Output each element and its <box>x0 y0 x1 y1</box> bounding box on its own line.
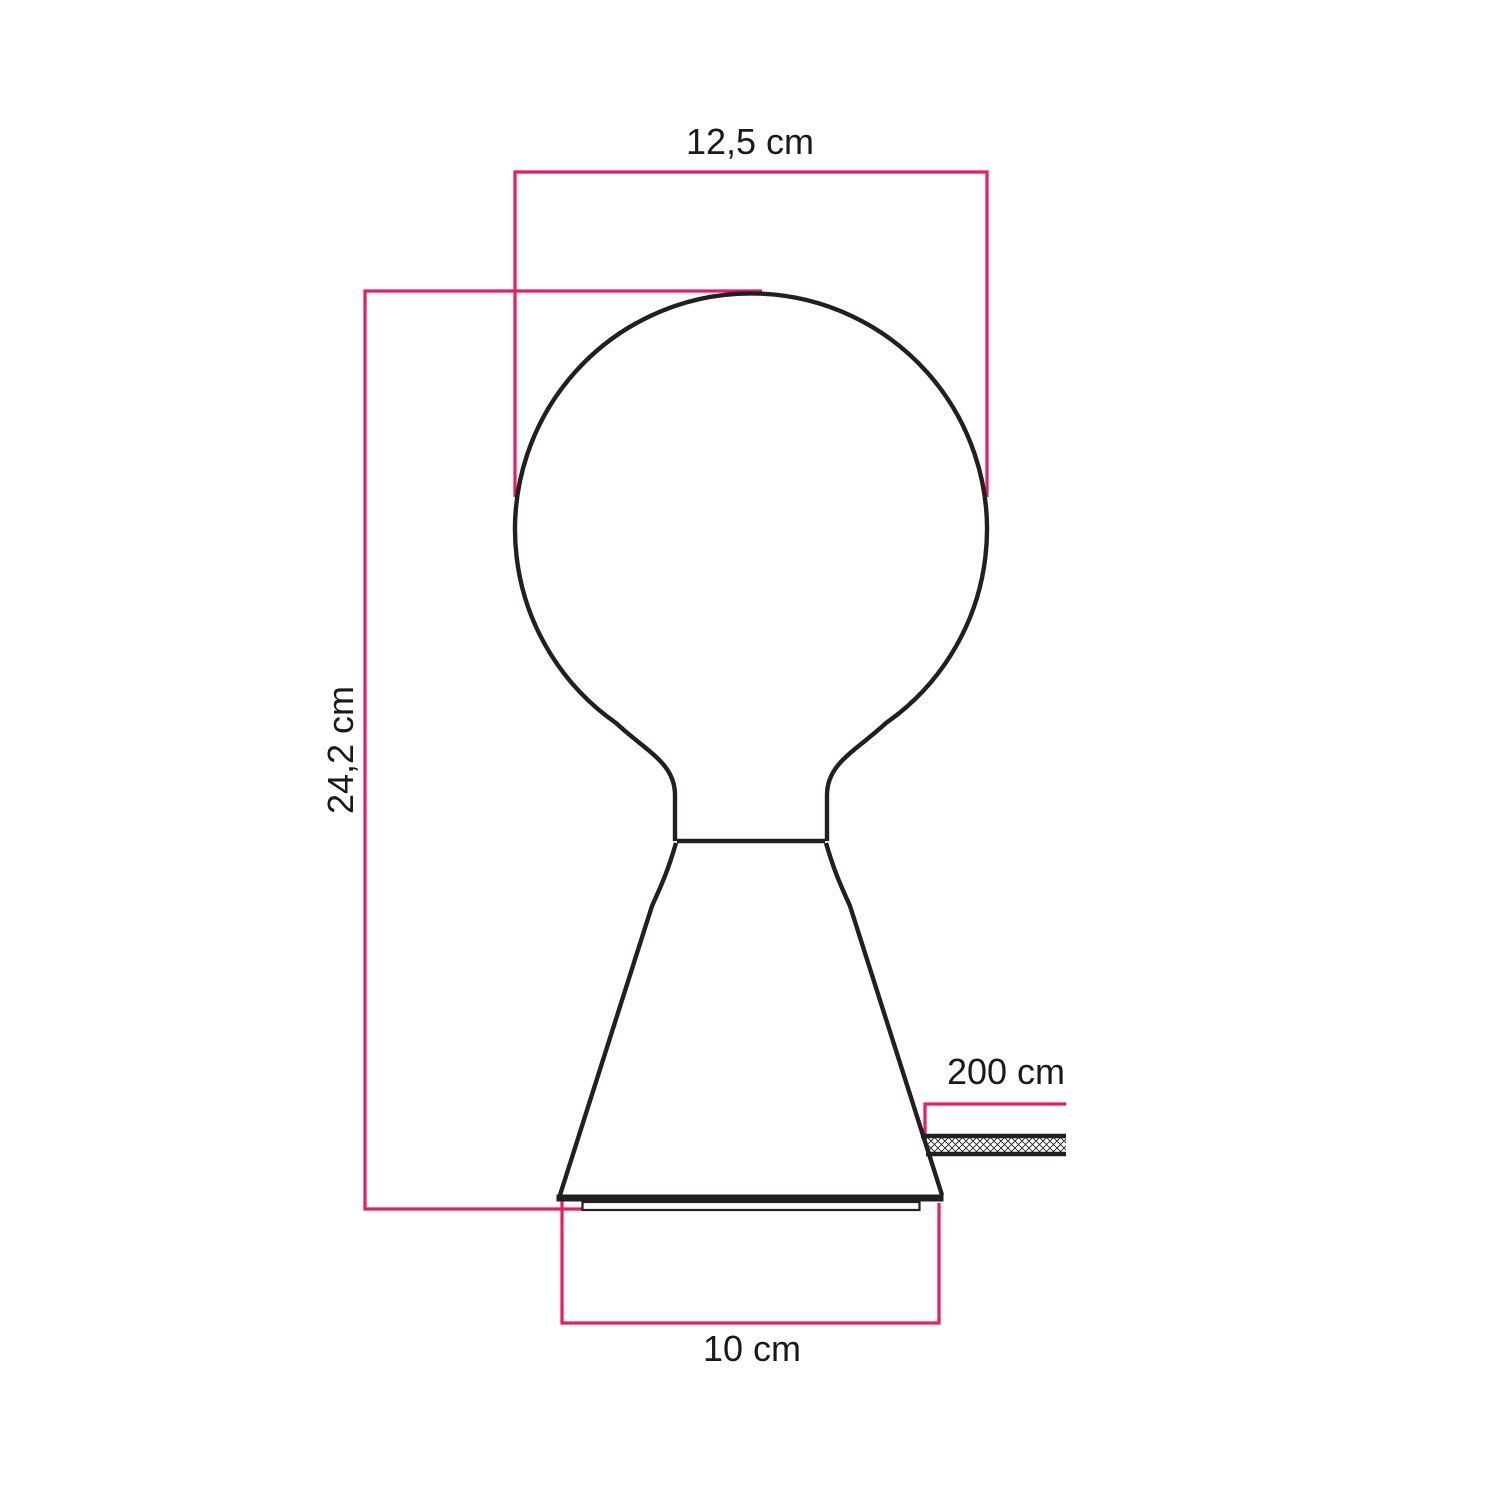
dim-line-base-width <box>562 1197 939 1323</box>
base-plate <box>583 1202 920 1210</box>
cable-braid-texture <box>923 1138 1066 1152</box>
cone-bottom-edge <box>557 1195 944 1202</box>
dim-line-total-height <box>365 291 762 1209</box>
dim-line-bulb-width <box>515 172 987 497</box>
cone-left-edge <box>560 843 676 1195</box>
lamp-drawing <box>0 0 1500 1500</box>
bulb-outline <box>515 293 987 841</box>
dimension-label-bulb-width: 12,5 cm <box>550 122 950 162</box>
dimension-label-base-width: 10 cm <box>602 1329 902 1369</box>
dimension-diagram: 12,5 cm 24,2 cm 200 cm 10 cm <box>0 0 1500 1500</box>
dimension-label-total-height: 24,2 cm <box>321 550 361 950</box>
power-cable <box>921 1136 1066 1154</box>
dimension-label-cable-length: 200 cm <box>856 1052 1156 1092</box>
dim-line-cable-length <box>925 1104 1066 1134</box>
